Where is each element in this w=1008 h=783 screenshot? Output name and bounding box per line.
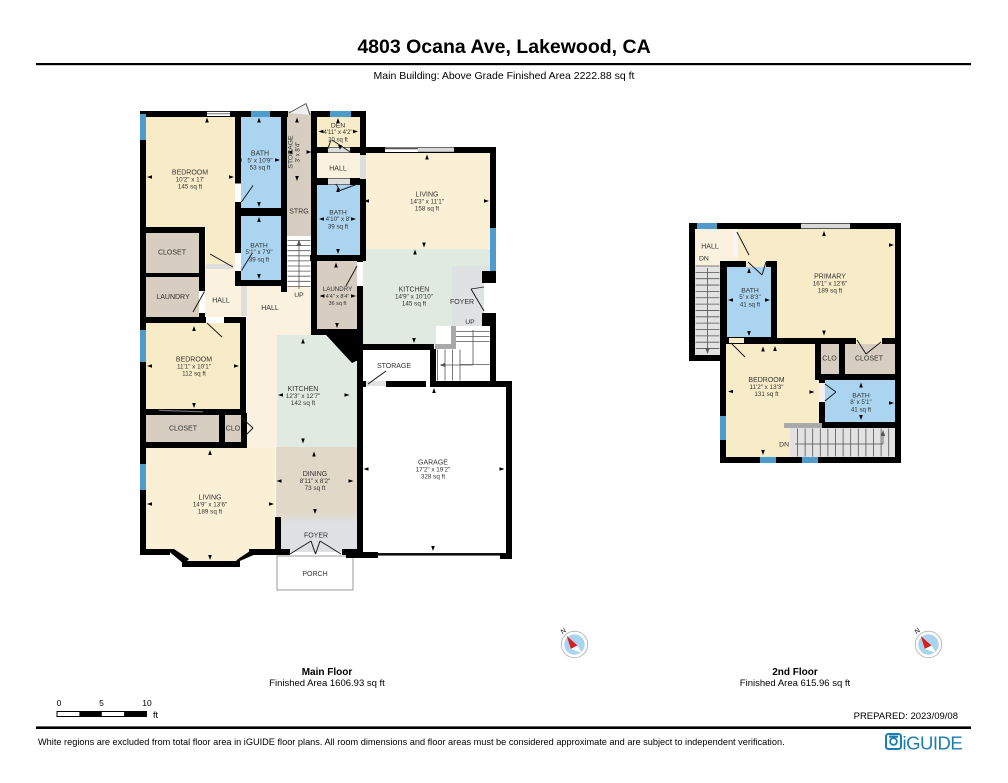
svg-text:53 sq ft: 53 sq ft: [250, 164, 271, 171]
svg-text:BEDROOM: BEDROOM: [172, 169, 208, 176]
svg-text:CLOSET: CLOSET: [158, 250, 187, 257]
svg-text:328 sq ft: 328 sq ft: [421, 473, 445, 480]
svg-text:73 sq ft: 73 sq ft: [305, 485, 326, 492]
svg-text:4'11" x 4'2": 4'11" x 4'2": [323, 130, 352, 136]
svg-text:14'3" x 11'1": 14'3" x 11'1": [410, 198, 444, 205]
svg-text:131 sq ft: 131 sq ft: [754, 391, 778, 398]
svg-text:ft: ft: [153, 710, 159, 720]
svg-text:4'4" x 8'4": 4'4" x 8'4": [326, 294, 350, 300]
svg-text:Main Building: Above Grade Fin: Main Building: Above Grade Finished Area…: [374, 70, 635, 82]
svg-text:20 sq ft: 20 sq ft: [328, 137, 348, 143]
svg-text:PREPARED: 2023/09/08: PREPARED: 2023/09/08: [854, 711, 958, 722]
svg-text:112 sq ft: 112 sq ft: [182, 370, 206, 377]
svg-text:FOYER: FOYER: [304, 533, 328, 540]
svg-text:41 sq ft: 41 sq ft: [740, 301, 761, 308]
svg-text:HALL: HALL: [701, 244, 719, 251]
svg-text:3' x 8'4": 3' x 8'4": [295, 142, 301, 163]
svg-text:142 sq ft: 142 sq ft: [291, 400, 315, 407]
svg-text:STRG: STRG: [289, 209, 308, 216]
svg-text:FOYER: FOYER: [450, 299, 474, 306]
svg-text:BATH: BATH: [329, 209, 347, 216]
svg-text:UP: UP: [294, 292, 304, 299]
svg-text:BATH: BATH: [741, 287, 759, 294]
svg-text:BATH: BATH: [250, 242, 268, 249]
svg-text:158 sq ft: 158 sq ft: [415, 205, 439, 212]
svg-text:DN: DN: [779, 442, 789, 449]
svg-text:145 sq ft: 145 sq ft: [178, 183, 202, 190]
svg-text:Finished Area 1606.93 sq ft: Finished Area 1606.93 sq ft: [269, 678, 385, 689]
svg-text:Finished Area 615.96 sq ft: Finished Area 615.96 sq ft: [740, 678, 851, 689]
svg-text:BEDROOM: BEDROOM: [176, 356, 212, 363]
svg-text:10'2" x 17': 10'2" x 17': [176, 176, 205, 183]
svg-text:0: 0: [57, 698, 62, 708]
svg-text:CLO: CLO: [226, 426, 241, 433]
svg-text:BATH: BATH: [251, 150, 269, 157]
svg-text:36 sq ft: 36 sq ft: [329, 301, 347, 307]
svg-text:iGUIDE: iGUIDE: [903, 733, 963, 754]
svg-text:145 sq ft: 145 sq ft: [402, 300, 426, 307]
svg-text:10: 10: [142, 698, 152, 708]
svg-text:CLOSET: CLOSET: [855, 356, 884, 363]
svg-text:BEDROOM: BEDROOM: [748, 377, 784, 384]
svg-text:189 sq ft: 189 sq ft: [198, 508, 222, 515]
svg-text:5'1" x 7'9": 5'1" x 7'9": [245, 249, 272, 256]
svg-text:KITCHEN: KITCHEN: [288, 386, 319, 393]
svg-text:8'11" x 8'2": 8'11" x 8'2": [300, 478, 331, 485]
svg-text:White regions are excluded fro: White regions are excluded from total fl…: [38, 737, 785, 747]
svg-text:PORCH: PORCH: [302, 571, 327, 578]
svg-text:STORAGE: STORAGE: [377, 363, 411, 370]
svg-text:14'9" x 10'10": 14'9" x 10'10": [395, 293, 433, 300]
svg-text:HALL: HALL: [329, 166, 347, 173]
svg-text:17'2" x 19'2": 17'2" x 19'2": [416, 466, 451, 473]
svg-text:41 sq ft: 41 sq ft: [851, 406, 872, 413]
svg-text:4803 Ocana Ave, Lakewood, CA: 4803 Ocana Ave, Lakewood, CA: [357, 36, 650, 58]
svg-text:5' x 8'3": 5' x 8'3": [739, 294, 760, 301]
svg-text:DN: DN: [699, 256, 709, 263]
svg-text:UP: UP: [465, 319, 475, 326]
svg-text:KITCHEN: KITCHEN: [399, 286, 430, 293]
svg-text:CLO: CLO: [822, 356, 837, 363]
svg-text:PRIMARY: PRIMARY: [814, 273, 846, 280]
svg-text:CLOSET: CLOSET: [169, 426, 198, 433]
svg-text:11'2" x 13'3": 11'2" x 13'3": [749, 384, 783, 391]
svg-text:11'1" x 10'1": 11'1" x 10'1": [177, 363, 211, 370]
svg-text:5' x 10'9": 5' x 10'9": [247, 157, 272, 164]
svg-text:LAUNDRY: LAUNDRY: [156, 294, 190, 301]
svg-text:39 sq ft: 39 sq ft: [249, 256, 270, 263]
svg-text:39 sq ft: 39 sq ft: [328, 223, 349, 230]
svg-text:LIVING: LIVING: [199, 494, 222, 501]
svg-text:12'3" x 12'7": 12'3" x 12'7": [286, 393, 321, 400]
svg-text:2nd Floor: 2nd Floor: [772, 667, 818, 678]
svg-text:14'9" x 13'6": 14'9" x 13'6": [193, 501, 228, 508]
svg-text:HALL: HALL: [261, 305, 279, 312]
svg-text:8' x 5'1": 8' x 5'1": [850, 399, 871, 406]
svg-text:HALL: HALL: [212, 298, 230, 305]
svg-text:Main Floor: Main Floor: [302, 667, 353, 678]
svg-text:5: 5: [99, 698, 104, 708]
svg-text:16'1" x 12'6": 16'1" x 12'6": [813, 280, 848, 287]
svg-text:GARAGE: GARAGE: [418, 459, 448, 466]
svg-text:4'10" x 8': 4'10" x 8': [326, 216, 351, 223]
svg-text:DEN: DEN: [331, 122, 345, 129]
svg-text:BATH: BATH: [852, 392, 870, 399]
svg-text:DINING: DINING: [303, 471, 328, 478]
svg-text:LAUNDRY: LAUNDRY: [323, 286, 352, 293]
svg-text:LIVING: LIVING: [416, 191, 439, 198]
svg-text:189 sq ft: 189 sq ft: [818, 287, 842, 294]
